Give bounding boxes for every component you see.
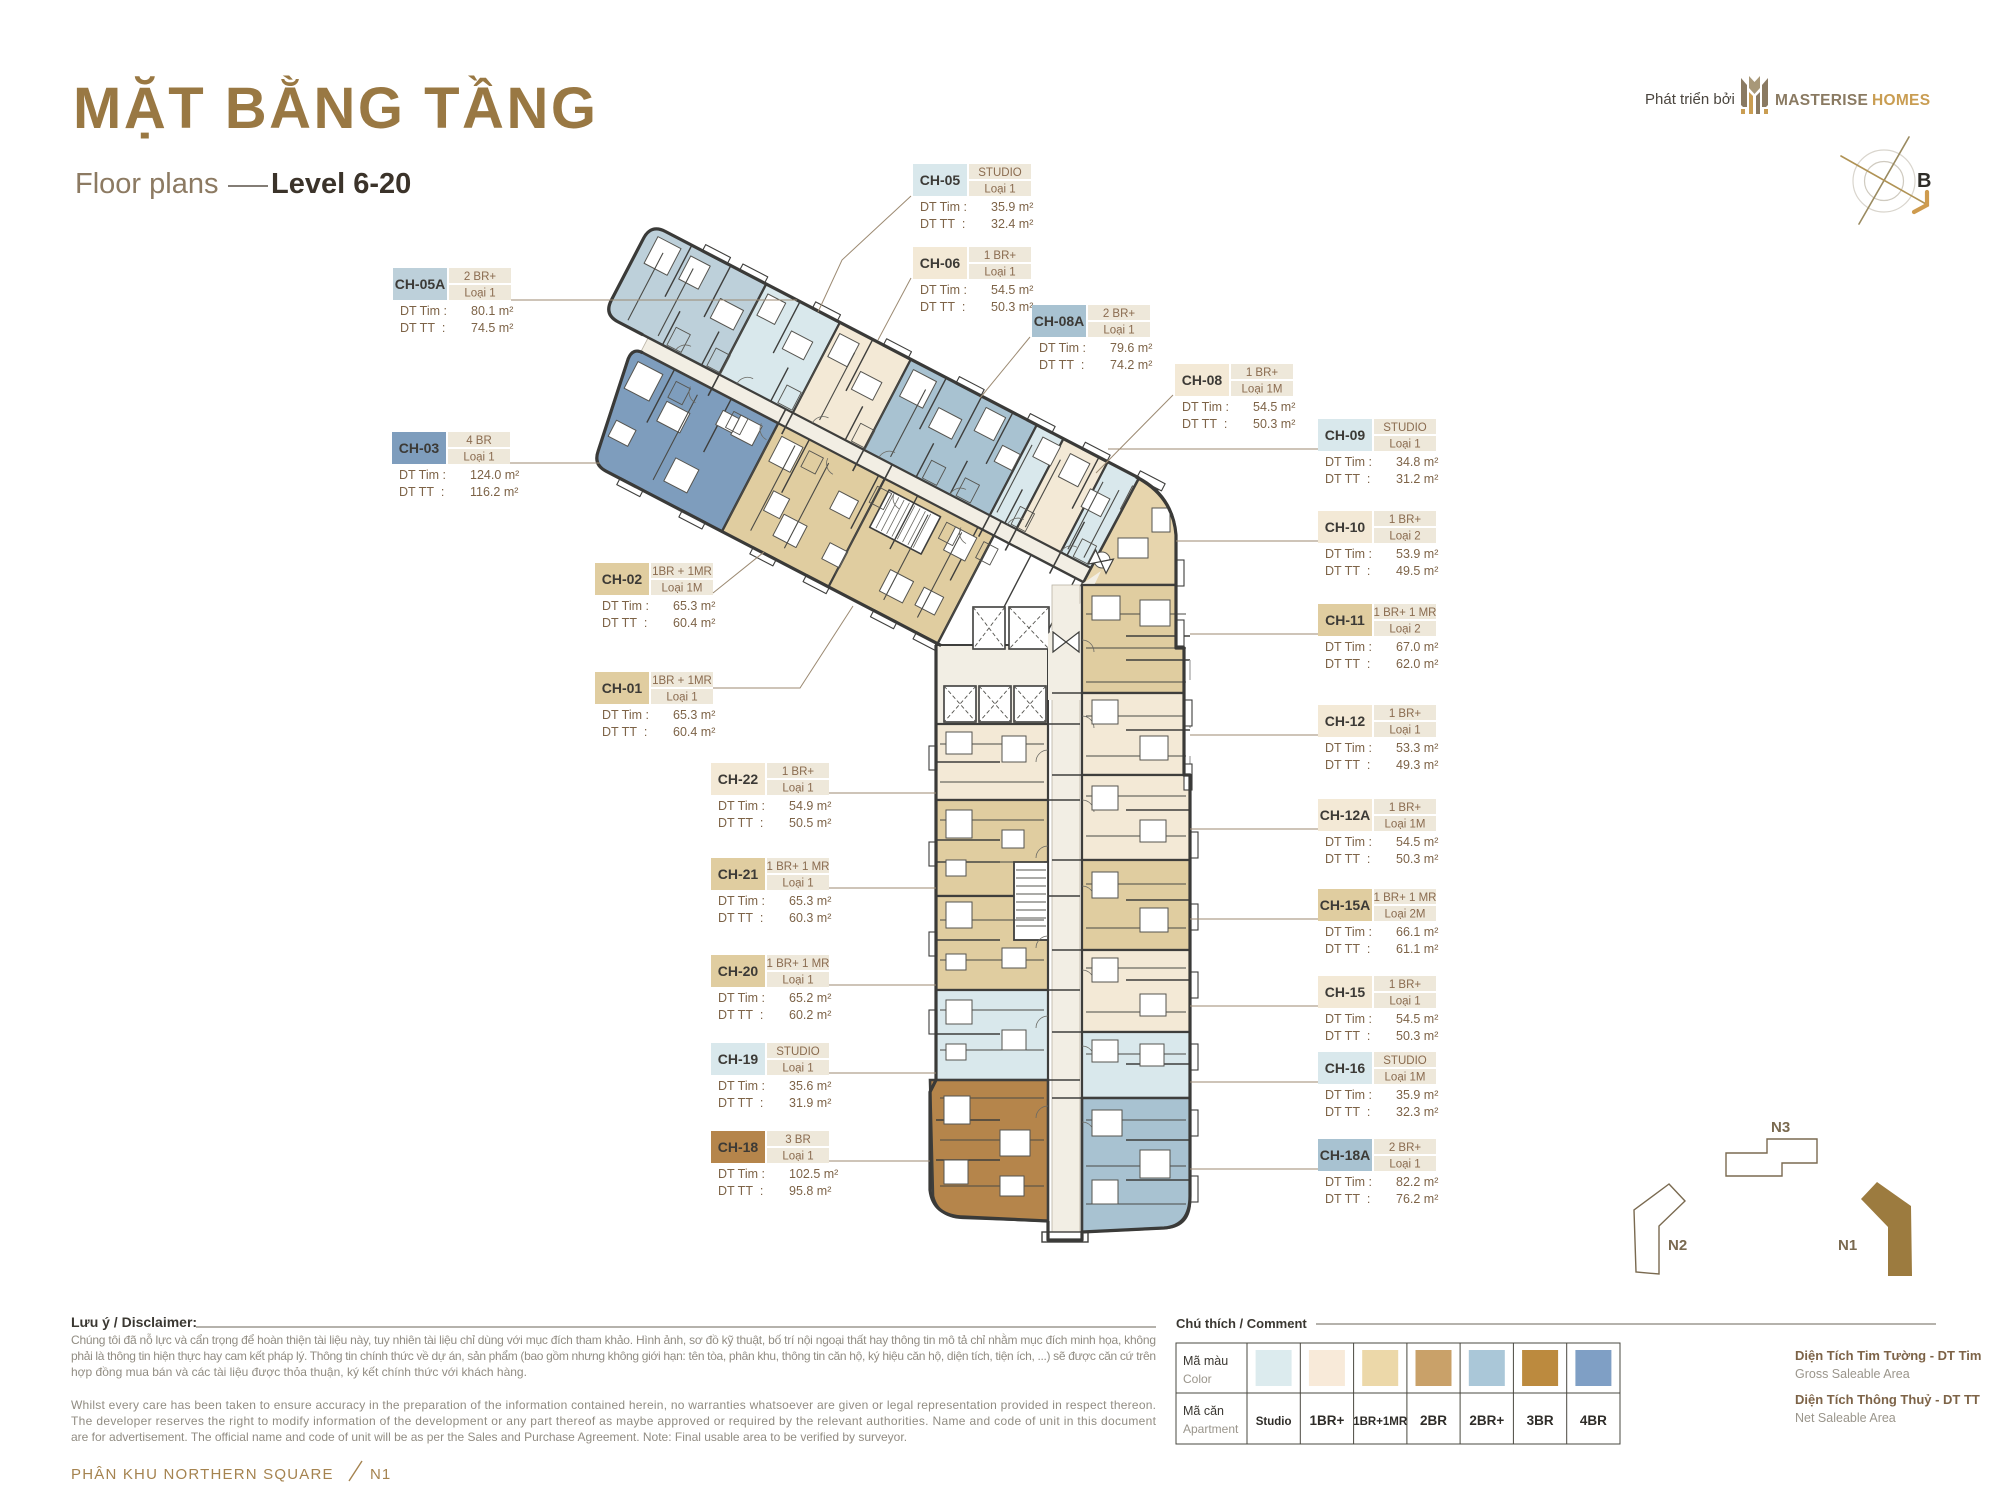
- svg-text:DT Tim :: DT Tim :: [602, 599, 649, 613]
- svg-text:N3: N3: [1771, 1119, 1790, 1136]
- svg-text:Floor plans: Floor plans: [75, 168, 218, 200]
- svg-text:1 BR+: 1 BR+: [1389, 514, 1422, 526]
- svg-text:DT Tim :: DT Tim :: [1325, 1012, 1372, 1026]
- svg-text:1 BR+ 1 MR: 1 BR+ 1 MR: [1374, 892, 1437, 904]
- svg-text:DT TT :: DT TT :: [718, 1096, 763, 1110]
- svg-text:DT Tim :: DT Tim :: [400, 304, 447, 318]
- svg-text:4BR: 4BR: [1580, 1413, 1607, 1428]
- svg-text:Diện Tích Tim Tường - DT Tim: Diện Tích Tim Tường - DT Tim: [1795, 1348, 1981, 1363]
- svg-text:49.3 m²: 49.3 m²: [1396, 758, 1438, 772]
- svg-text:Loại 1: Loại 1: [1389, 439, 1420, 451]
- svg-text:2BR+: 2BR+: [1469, 1413, 1504, 1428]
- svg-text:N1: N1: [1838, 1237, 1857, 1254]
- svg-text:B: B: [1917, 170, 1931, 192]
- svg-text:54.5 m²: 54.5 m²: [1396, 1012, 1438, 1026]
- svg-text:Chúng tôi đã nỗ lực và cẩn trọ: Chúng tôi đã nỗ lực và cẩn trọng để hoàn…: [71, 1332, 1156, 1347]
- svg-text:CH-08A: CH-08A: [1034, 313, 1085, 329]
- svg-text:35.6 m²: 35.6 m²: [789, 1079, 831, 1093]
- svg-text:1BR + 1MR: 1BR + 1MR: [652, 566, 712, 578]
- svg-text:Chú thích / Comment: Chú thích / Comment: [1176, 1316, 1307, 1331]
- svg-text:74.2 m²: 74.2 m²: [1110, 358, 1152, 372]
- svg-text:Loại 1M: Loại 1M: [662, 583, 703, 595]
- svg-text:54.5 m²: 54.5 m²: [1253, 400, 1295, 414]
- svg-text:49.5 m²: 49.5 m²: [1396, 564, 1438, 578]
- svg-text:53.3 m²: 53.3 m²: [1396, 741, 1438, 755]
- svg-text:N2: N2: [1668, 1237, 1687, 1254]
- svg-text:60.3 m²: 60.3 m²: [789, 911, 831, 925]
- svg-text:Loại 1: Loại 1: [984, 184, 1015, 196]
- svg-text:Loại 1: Loại 1: [782, 1063, 813, 1075]
- svg-text:Diện Tích Thông Thuỷ - DT TT: Diện Tích Thông Thuỷ - DT TT: [1795, 1392, 1980, 1407]
- svg-text:Loại 1M: Loại 1M: [1385, 1072, 1426, 1084]
- svg-text:DT TT :: DT TT :: [718, 1008, 763, 1022]
- svg-text:Loại 1: Loại 1: [984, 267, 1015, 279]
- svg-text:DT TT :: DT TT :: [1325, 1105, 1370, 1119]
- svg-text:PHÂN KHU NORTHERN SQUARE: PHÂN KHU NORTHERN SQUARE: [71, 1466, 334, 1483]
- svg-text:DT Tim :: DT Tim :: [1325, 640, 1372, 654]
- svg-text:82.2 m²: 82.2 m²: [1396, 1175, 1438, 1189]
- svg-text:79.6 m²: 79.6 m²: [1110, 341, 1152, 355]
- svg-text:CH-20: CH-20: [718, 963, 759, 979]
- svg-text:Loại 1: Loại 1: [1389, 725, 1420, 737]
- svg-text:Color: Color: [1183, 1372, 1212, 1386]
- svg-text:1 BR+: 1 BR+: [984, 250, 1017, 262]
- svg-text:CH-12A: CH-12A: [1320, 807, 1371, 823]
- svg-text:Apartment: Apartment: [1183, 1422, 1239, 1436]
- svg-text:DT TT :: DT TT :: [920, 300, 965, 314]
- svg-text:31.9 m²: 31.9 m²: [789, 1096, 831, 1110]
- svg-text:66.1 m²: 66.1 m²: [1396, 925, 1438, 939]
- svg-text:CH-15: CH-15: [1325, 984, 1366, 1000]
- svg-text:N1: N1: [370, 1466, 391, 1483]
- svg-text:DT Tim :: DT Tim :: [602, 708, 649, 722]
- svg-text:65.3 m²: 65.3 m²: [673, 599, 715, 613]
- svg-text:The developer reserves the rig: The developer reserves the right to modi…: [71, 1414, 1157, 1428]
- svg-text:CH-18: CH-18: [718, 1139, 759, 1155]
- svg-text:MASTERISE: MASTERISE: [1775, 92, 1868, 109]
- svg-text:DT TT :: DT TT :: [1325, 852, 1370, 866]
- svg-text:CH-16: CH-16: [1325, 1060, 1366, 1076]
- svg-text:STUDIO: STUDIO: [1383, 1055, 1427, 1067]
- svg-text:CH-22: CH-22: [718, 771, 759, 787]
- svg-text:Mã căn: Mã căn: [1183, 1404, 1224, 1418]
- svg-text:CH-21: CH-21: [718, 866, 759, 882]
- svg-text:DT TT :: DT TT :: [1325, 564, 1370, 578]
- svg-text:DT TT :: DT TT :: [1325, 1029, 1370, 1043]
- svg-text:STUDIO: STUDIO: [1383, 422, 1427, 434]
- svg-text:1 BR+ 1 MR: 1 BR+ 1 MR: [767, 861, 830, 873]
- svg-text:35.9 m²: 35.9 m²: [991, 200, 1033, 214]
- svg-text:35.9 m²: 35.9 m²: [1396, 1088, 1438, 1102]
- svg-text:60.4 m²: 60.4 m²: [673, 725, 715, 739]
- svg-text:1 BR+: 1 BR+: [1389, 979, 1422, 991]
- svg-text:61.1 m²: 61.1 m²: [1396, 942, 1438, 956]
- svg-text:1BR+1MR: 1BR+1MR: [1353, 1416, 1408, 1428]
- svg-text:CH-11: CH-11: [1325, 612, 1365, 628]
- svg-text:CH-19: CH-19: [718, 1051, 759, 1067]
- svg-text:DT TT :: DT TT :: [1039, 358, 1084, 372]
- svg-text:CH-03: CH-03: [399, 440, 440, 456]
- svg-text:hợp đồng mua bán và các tài li: hợp đồng mua bán và các tài liệu được th…: [71, 1365, 527, 1379]
- svg-text:31.2 m²: 31.2 m²: [1396, 472, 1438, 486]
- svg-text:54.5 m²: 54.5 m²: [991, 283, 1033, 297]
- svg-text:DT TT :: DT TT :: [602, 616, 647, 630]
- svg-text:DT Tim :: DT Tim :: [1325, 1175, 1372, 1189]
- svg-text:Loại 1: Loại 1: [782, 1151, 813, 1163]
- svg-text:Phát triển bởi: Phát triển bởi: [1645, 91, 1735, 108]
- svg-text:DT TT :: DT TT :: [1325, 1192, 1370, 1206]
- svg-text:DT Tim :: DT Tim :: [718, 799, 765, 813]
- svg-text:2 BR+: 2 BR+: [464, 271, 497, 283]
- svg-text:STUDIO: STUDIO: [776, 1046, 820, 1058]
- svg-text:DT TT :: DT TT :: [718, 1184, 763, 1198]
- svg-text:76.2 m²: 76.2 m²: [1396, 1192, 1438, 1206]
- svg-text:Loại 1M: Loại 1M: [1385, 819, 1426, 831]
- svg-text:DT TT :: DT TT :: [602, 725, 647, 739]
- svg-text:Lưu ý / Disclaimer:: Lưu ý / Disclaimer:: [71, 1314, 197, 1330]
- svg-text:1BR+: 1BR+: [1309, 1413, 1344, 1428]
- svg-text:CH-06: CH-06: [920, 255, 961, 271]
- svg-text:Loại 1M: Loại 1M: [1242, 384, 1283, 396]
- svg-text:32.3 m²: 32.3 m²: [1396, 1105, 1438, 1119]
- svg-text:DT Tim :: DT Tim :: [718, 1079, 765, 1093]
- svg-text:3BR: 3BR: [1527, 1413, 1554, 1428]
- svg-text:CH-01: CH-01: [602, 680, 643, 696]
- svg-text:DT Tim :: DT Tim :: [1325, 835, 1372, 849]
- svg-text:DT Tim :: DT Tim :: [1325, 925, 1372, 939]
- svg-text:50.3 m²: 50.3 m²: [1253, 417, 1295, 431]
- svg-text:DT TT :: DT TT :: [920, 217, 965, 231]
- svg-text:1 BR+: 1 BR+: [1389, 708, 1422, 720]
- svg-text:3 BR: 3 BR: [785, 1134, 811, 1146]
- svg-text:DT Tim :: DT Tim :: [1325, 455, 1372, 469]
- svg-text:Loại 1: Loại 1: [463, 452, 494, 464]
- svg-text:DT Tim :: DT Tim :: [1325, 547, 1372, 561]
- svg-text:DT Tim :: DT Tim :: [1325, 741, 1372, 755]
- svg-text:CH-02: CH-02: [602, 571, 643, 587]
- svg-text:CH-09: CH-09: [1325, 427, 1366, 443]
- svg-text:50.5 m²: 50.5 m²: [789, 816, 831, 830]
- svg-text:DT Tim :: DT Tim :: [920, 200, 967, 214]
- svg-text:MẶT BẰNG TẦNG: MẶT BẰNG TẦNG: [73, 76, 598, 141]
- svg-text:HOMES: HOMES: [1872, 92, 1930, 109]
- svg-text:DT Tim :: DT Tim :: [718, 1167, 765, 1181]
- svg-text:Level 6-20: Level 6-20: [271, 168, 411, 200]
- svg-text:67.0 m²: 67.0 m²: [1396, 640, 1438, 654]
- svg-text:DT Tim :: DT Tim :: [1182, 400, 1229, 414]
- svg-text:Loại 1: Loại 1: [1103, 325, 1134, 337]
- svg-text:CH-15A: CH-15A: [1320, 897, 1371, 913]
- svg-text:DT Tim :: DT Tim :: [1039, 341, 1086, 355]
- svg-text:80.1 m²: 80.1 m²: [471, 304, 513, 318]
- svg-text:Loại 1: Loại 1: [464, 288, 495, 300]
- svg-text:DT Tim :: DT Tim :: [1325, 1088, 1372, 1102]
- svg-text:Loại 2: Loại 2: [1389, 624, 1420, 636]
- svg-text:1 BR+: 1 BR+: [1389, 802, 1422, 814]
- svg-text:phải là thông tin hiện thực ha: phải là thông tin hiện thực hay cam kết …: [71, 1349, 1156, 1363]
- svg-text:4 BR: 4 BR: [466, 435, 492, 447]
- svg-text:54.9 m²: 54.9 m²: [789, 799, 831, 813]
- svg-text:DT TT :: DT TT :: [718, 816, 763, 830]
- svg-text:2BR: 2BR: [1420, 1413, 1447, 1428]
- svg-text:65.3 m²: 65.3 m²: [789, 894, 831, 908]
- svg-text:74.5 m²: 74.5 m²: [471, 321, 513, 335]
- svg-text:Loại 1: Loại 1: [782, 783, 813, 795]
- svg-text:DT TT :: DT TT :: [400, 321, 445, 335]
- svg-text:Loại 1: Loại 1: [782, 975, 813, 987]
- svg-text:DT Tim :: DT Tim :: [718, 894, 765, 908]
- svg-text:CH-10: CH-10: [1325, 519, 1366, 535]
- svg-text:Loại 1: Loại 1: [782, 878, 813, 890]
- svg-text:DT TT :: DT TT :: [1325, 942, 1370, 956]
- svg-text:Whilst every care has been tak: Whilst every care has been taken to ensu…: [71, 1398, 1156, 1412]
- svg-text:DT TT :: DT TT :: [718, 911, 763, 925]
- svg-text:65.3 m²: 65.3 m²: [673, 708, 715, 722]
- svg-text:CH-08: CH-08: [1182, 372, 1223, 388]
- svg-text:DT Tim :: DT Tim :: [399, 468, 446, 482]
- svg-text:34.8 m²: 34.8 m²: [1396, 455, 1438, 469]
- svg-text:Studio: Studio: [1256, 1416, 1292, 1428]
- svg-text:116.2 m²: 116.2 m²: [470, 485, 518, 499]
- svg-text:CH-12: CH-12: [1325, 713, 1366, 729]
- svg-text:32.4 m²: 32.4 m²: [991, 217, 1033, 231]
- svg-text:Loại 1: Loại 1: [1389, 996, 1420, 1008]
- svg-text:50.3 m²: 50.3 m²: [991, 300, 1033, 314]
- svg-text:2 BR+: 2 BR+: [1103, 308, 1136, 320]
- svg-text:65.2 m²: 65.2 m²: [789, 991, 831, 1005]
- svg-text:53.9 m²: 53.9 m²: [1396, 547, 1438, 561]
- svg-text:Loại 2M: Loại 2M: [1385, 909, 1426, 921]
- svg-text:Net Saleable Area: Net Saleable Area: [1795, 1411, 1896, 1425]
- svg-text:1 BR+ 1 MR: 1 BR+ 1 MR: [1374, 607, 1437, 619]
- svg-text:are for advertisement. The off: are for advertisement. The official name…: [71, 1430, 907, 1444]
- svg-text:DT Tim :: DT Tim :: [718, 991, 765, 1005]
- svg-text:60.2 m²: 60.2 m²: [789, 1008, 831, 1022]
- svg-text:Gross Saleable Area: Gross Saleable Area: [1795, 1367, 1910, 1381]
- svg-text:1BR + 1MR: 1BR + 1MR: [652, 675, 712, 687]
- svg-text:1 BR+ 1 MR: 1 BR+ 1 MR: [767, 958, 830, 970]
- svg-text:50.3 m²: 50.3 m²: [1396, 852, 1438, 866]
- svg-text:DT TT :: DT TT :: [1325, 657, 1370, 671]
- svg-text:DT TT :: DT TT :: [1182, 417, 1227, 431]
- svg-text:1 BR+: 1 BR+: [1246, 367, 1279, 379]
- svg-text:102.5 m²: 102.5 m²: [789, 1167, 838, 1181]
- svg-text:124.0 m²: 124.0 m²: [470, 468, 519, 482]
- svg-text:Loại 1: Loại 1: [666, 692, 697, 704]
- svg-text:CH-05A: CH-05A: [395, 276, 446, 292]
- svg-text:DT TT :: DT TT :: [1325, 472, 1370, 486]
- svg-text:60.4 m²: 60.4 m²: [673, 616, 715, 630]
- svg-text:DT TT :: DT TT :: [399, 485, 444, 499]
- svg-text:Loại 1: Loại 1: [1389, 1159, 1420, 1171]
- svg-text:2 BR+: 2 BR+: [1389, 1142, 1422, 1154]
- svg-text:Mã màu: Mã màu: [1183, 1354, 1228, 1368]
- svg-text:50.3 m²: 50.3 m²: [1396, 1029, 1438, 1043]
- svg-text:DT TT :: DT TT :: [1325, 758, 1370, 772]
- svg-text:Loại 2: Loại 2: [1389, 531, 1420, 543]
- svg-text:DT Tim :: DT Tim :: [920, 283, 967, 297]
- svg-text:1 BR+: 1 BR+: [782, 766, 815, 778]
- svg-text:95.8 m²: 95.8 m²: [789, 1184, 831, 1198]
- svg-text:STUDIO: STUDIO: [978, 167, 1022, 179]
- svg-text:54.5 m²: 54.5 m²: [1396, 835, 1438, 849]
- svg-text:CH-18A: CH-18A: [1320, 1147, 1371, 1163]
- svg-text:CH-05: CH-05: [920, 172, 961, 188]
- svg-text:62.0 m²: 62.0 m²: [1396, 657, 1438, 671]
